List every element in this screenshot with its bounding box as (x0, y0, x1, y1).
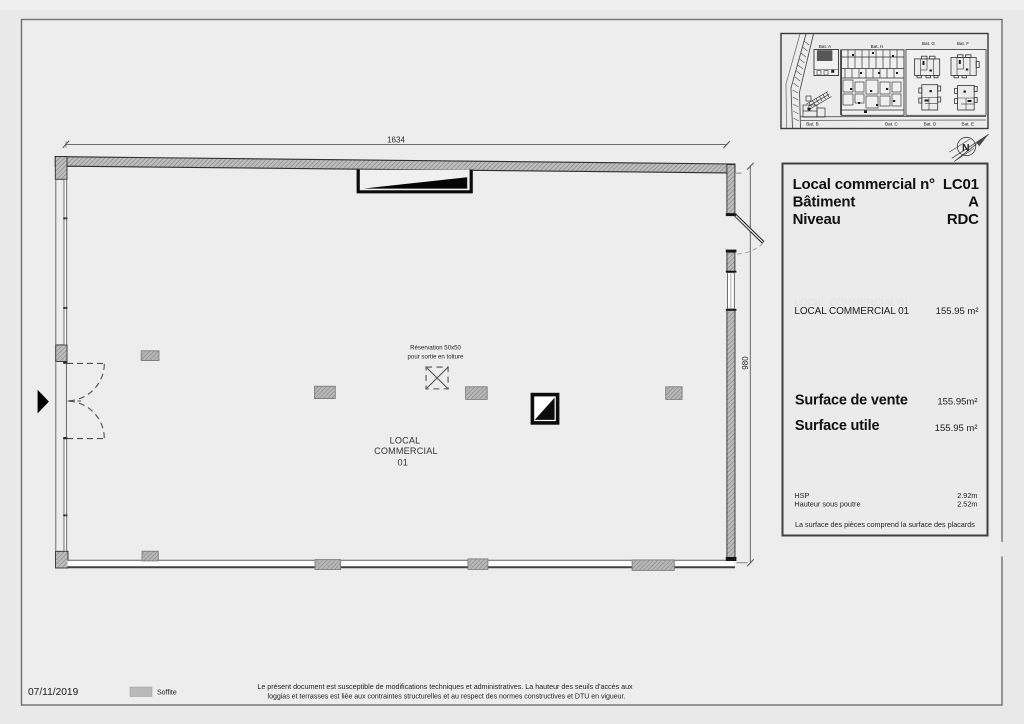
svg-text:1634: 1634 (387, 136, 405, 145)
svg-text:LC01: LC01 (943, 176, 979, 193)
svg-text:Le présent document est suscep: Le présent document est susceptible de m… (257, 683, 633, 691)
svg-text:Hauteur sous poutre: Hauteur sous poutre (794, 499, 860, 508)
svg-text:Bat. F: Bat. F (957, 41, 969, 46)
svg-text:2.52m: 2.52m (957, 499, 977, 508)
svg-text:Bat. G: Bat. G (922, 41, 935, 46)
svg-text:LOCAL COMMERCIAL 01: LOCAL COMMERCIAL 01 (794, 306, 909, 317)
svg-text:Bat. D: Bat. D (924, 122, 937, 127)
svg-text:pour sortie en toiture: pour sortie en toiture (408, 354, 465, 361)
svg-text:loggias et terrasses est liée: loggias et terrasses est liée aux contra… (268, 694, 626, 701)
svg-text:COMMERCIAL: COMMERCIAL (374, 446, 438, 456)
svg-text:Bat. C: Bat. C (885, 122, 898, 127)
svg-text:Bâtiment: Bâtiment (793, 194, 856, 211)
svg-text:RDC: RDC (947, 211, 979, 228)
svg-text:Bat. H: Bat. H (871, 44, 884, 49)
svg-text:155.95 m²: 155.95 m² (935, 423, 978, 434)
svg-text:07/11/2019: 07/11/2019 (28, 687, 79, 698)
svg-text:Niveau: Niveau (793, 211, 841, 228)
svg-text:N: N (962, 142, 970, 154)
svg-text:Bat. A: Bat. A (819, 44, 832, 49)
svg-text:Soffite: Soffite (157, 690, 177, 697)
svg-text:01: 01 (398, 458, 409, 468)
svg-text:155.95m²: 155.95m² (937, 397, 977, 408)
svg-text:Bat. B: Bat. B (806, 122, 819, 127)
svg-text:La surface des pièces comprend: La surface des pièces comprend la surfac… (795, 520, 975, 529)
svg-text:A: A (968, 194, 979, 211)
svg-text:Bat. E: Bat. E (962, 122, 975, 127)
svg-text:LOCAL: LOCAL (390, 436, 421, 446)
svg-text:980: 980 (741, 356, 750, 370)
svg-text:Surface utile: Surface utile (795, 418, 880, 434)
svg-text:Surface de vente: Surface de vente (795, 393, 908, 409)
svg-text:155.95 m²: 155.95 m² (936, 306, 979, 317)
svg-text:Réservation 50x50: Réservation 50x50 (410, 344, 461, 351)
svg-text:Local commercial n°: Local commercial n° (793, 176, 935, 193)
